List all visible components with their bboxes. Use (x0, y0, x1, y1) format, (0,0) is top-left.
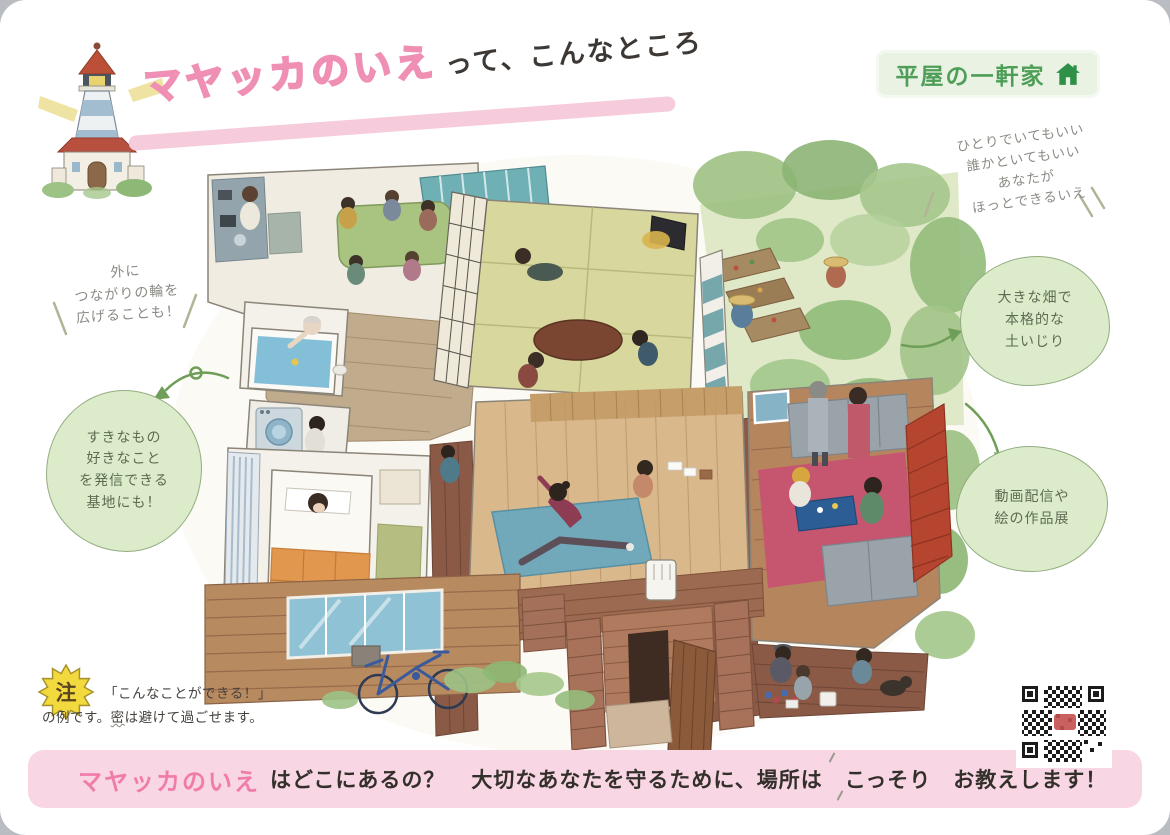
bubble-garden: 大きな畑で 本格的な 土いじり (960, 256, 1110, 386)
footnote-line1: 「こんなことができる！」 (104, 682, 272, 702)
bathroom (240, 302, 348, 396)
living-room (748, 378, 952, 648)
qr-code (1016, 678, 1112, 772)
footnote-line2-pre: の例です。 (42, 710, 111, 726)
doorway (628, 630, 670, 710)
bubble-line: 絵の作品展 (995, 509, 1070, 531)
footnote-line2-post: は避けて過ごせます。 (125, 710, 264, 726)
note-badge-label: 注 (56, 681, 77, 705)
footnote-line2: の例です。密は避けて過ごせます。 (42, 706, 263, 726)
bubble-line: 好きなこと (87, 449, 162, 471)
footnote-line2-emphasis: 密 (111, 710, 125, 726)
bubble-line: 大きな畑で (998, 288, 1073, 310)
emphasis-mark (828, 752, 835, 763)
bubble-line: すきなもの (87, 428, 162, 450)
footer-emphasis-text: こっそり (845, 768, 932, 792)
footer-middle: 大切なあなたを守るために、場所は (471, 764, 822, 794)
poster-page: 注 マヤッカのいえ って、こんなところ 平屋の一軒家 ひとりでいてもいい 誰かと… (0, 0, 1170, 835)
bubble-line: を発信できる (79, 471, 169, 493)
entrance (566, 600, 754, 764)
round-table (534, 320, 622, 360)
bubble-line: 本格的な (1005, 310, 1065, 332)
footer-emphasis: こっそり (845, 764, 932, 794)
bubble-line: 土いじり (1005, 332, 1065, 354)
footer-bar: マヤッカのいえ はどこにあるの？ 大切なあなたを守るために、場所は こっそり お… (28, 750, 1142, 808)
open-door (668, 640, 716, 764)
note-left: 外に つながりの輪を 広げることも！ (48, 257, 206, 333)
bubble-line: 動画配信や (995, 487, 1070, 509)
footer-house-name: マヤッカのいえ (78, 762, 260, 797)
emphasis-mark (836, 790, 843, 801)
footer-question: はどこにあるの？ (270, 764, 445, 794)
qr-center-logo (1054, 714, 1076, 730)
play-area (752, 644, 928, 718)
house-icon (1055, 62, 1081, 86)
house-type-label: 平屋の一軒家 (896, 57, 1046, 91)
bubble-line: 基地にも！ (87, 493, 162, 515)
house-type-badge: 平屋の一軒家 (876, 50, 1100, 98)
bubble-base: すきなもの 好きなこと を発信できる 基地にも！ (46, 390, 202, 552)
brick-wall (906, 404, 952, 582)
